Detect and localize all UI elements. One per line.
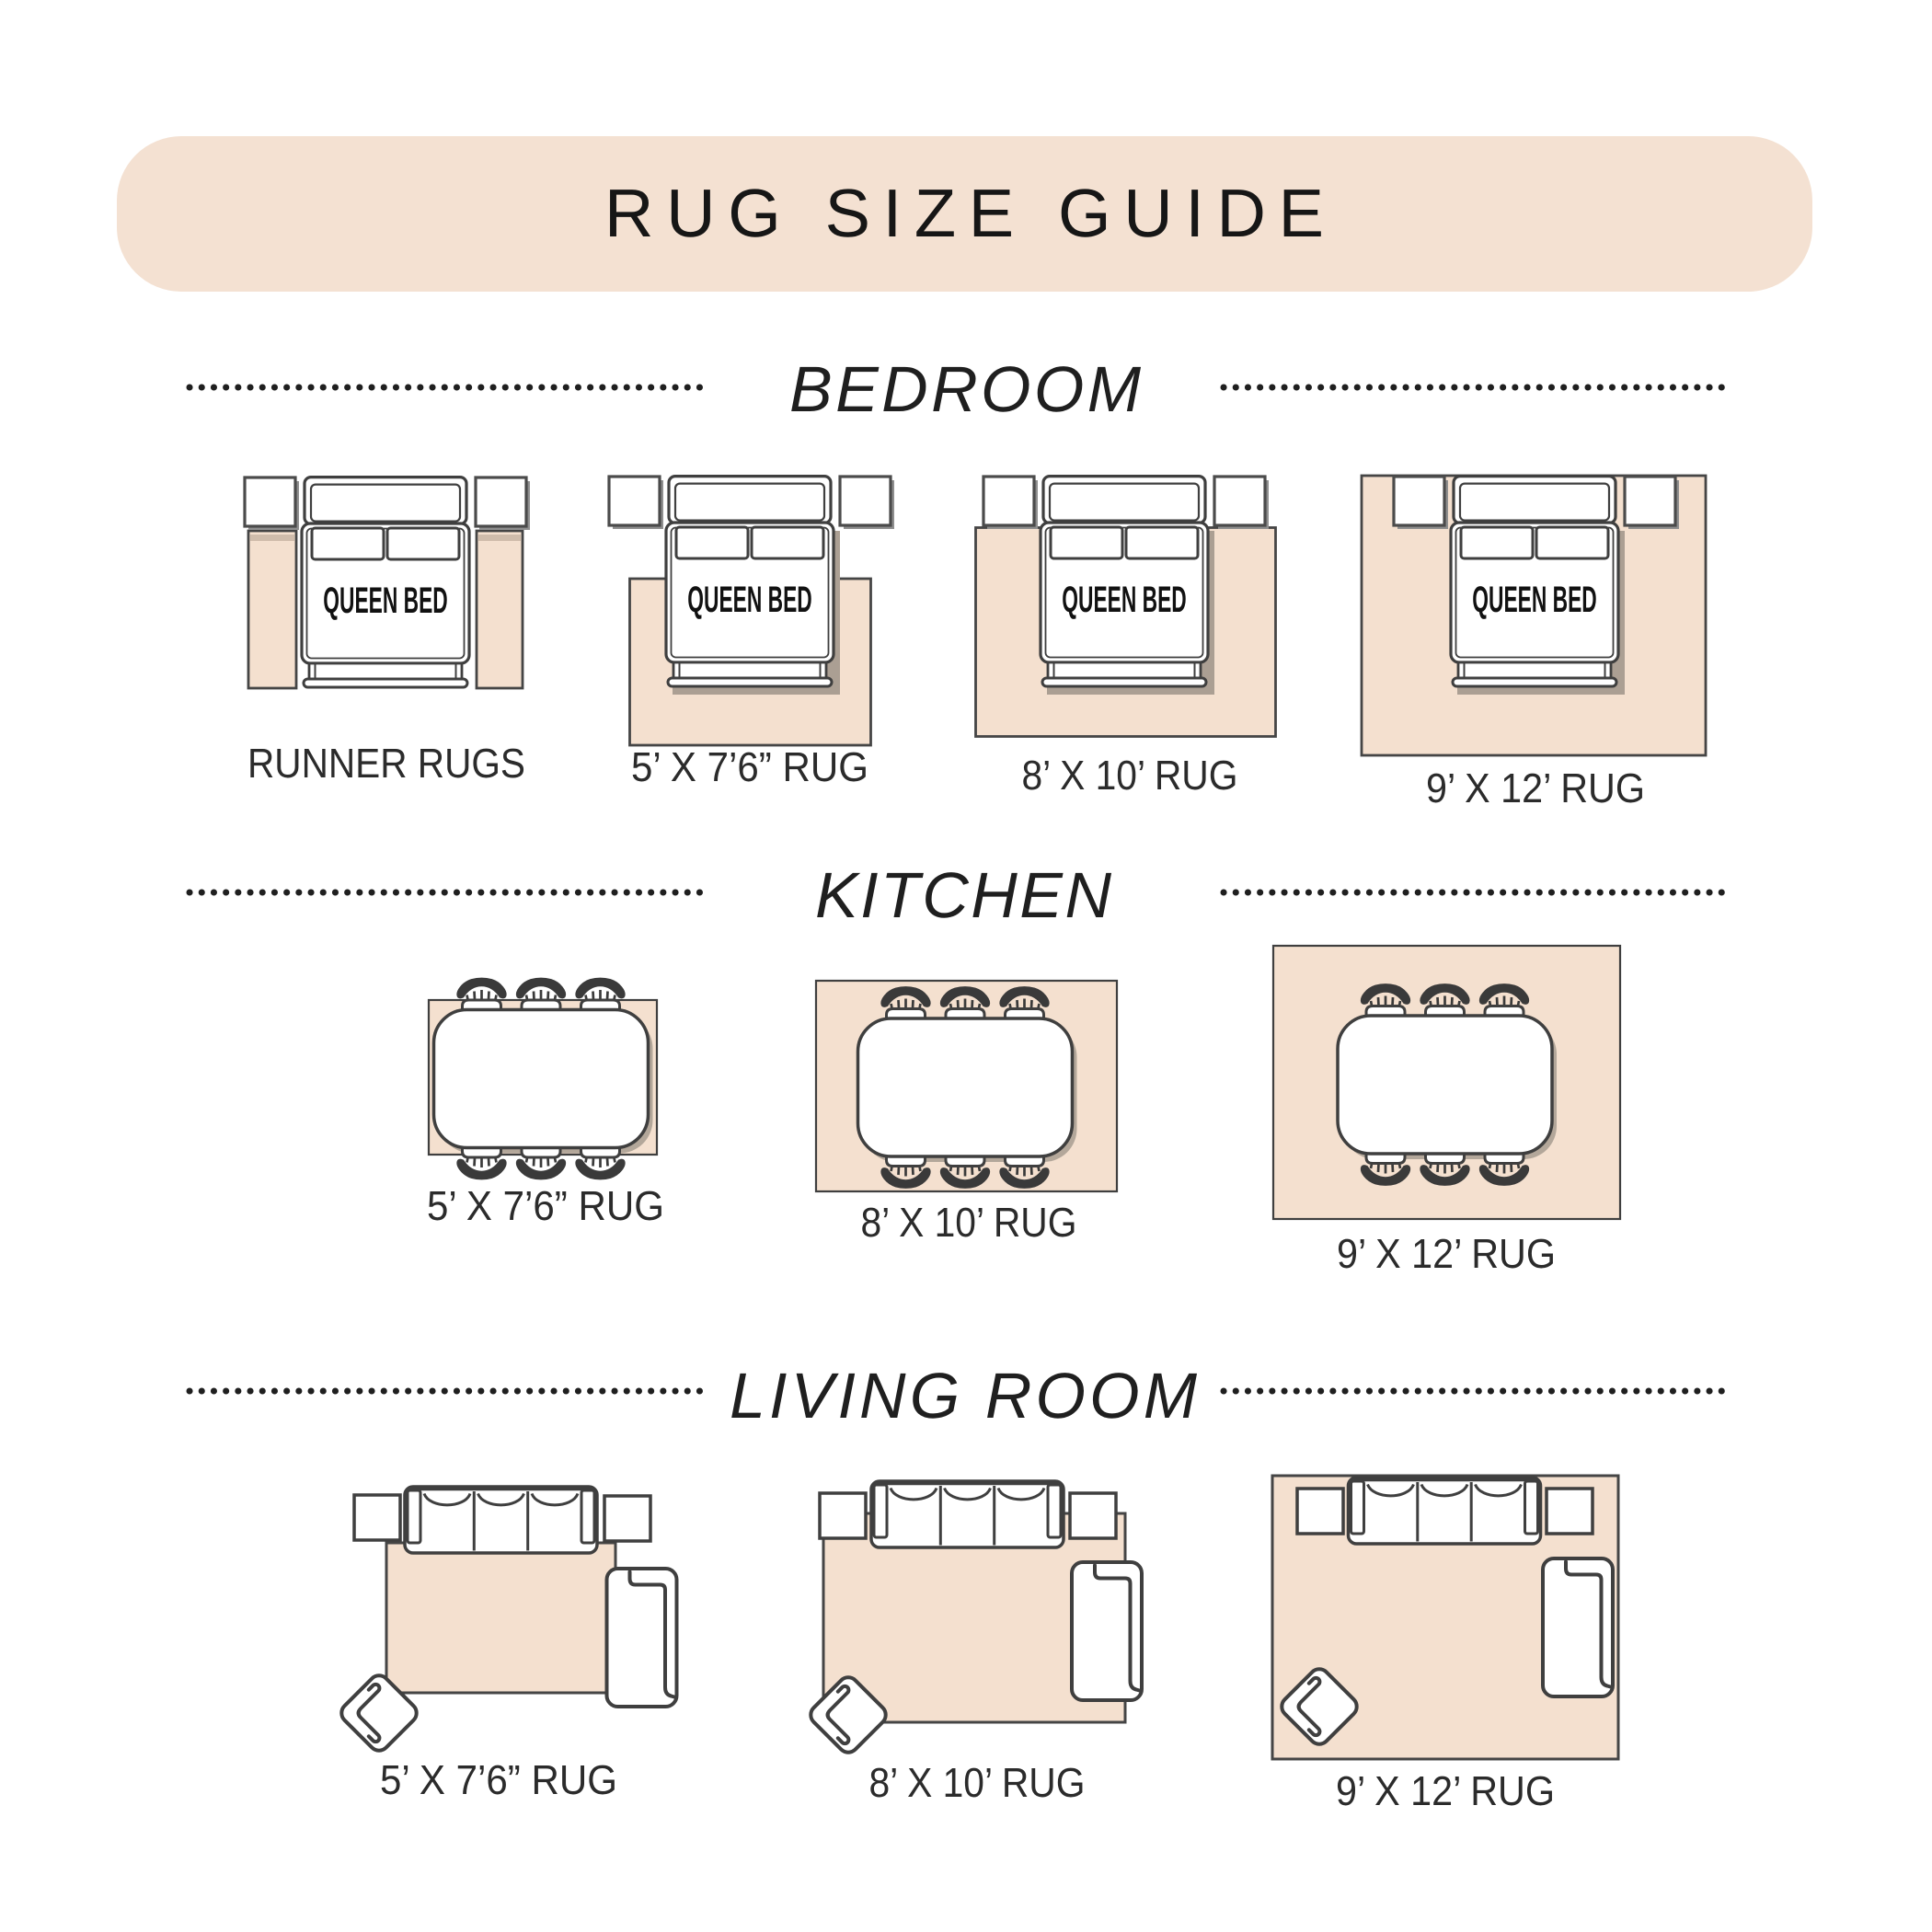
svg-text:RUNNER RUGS: RUNNER RUGS: [247, 740, 525, 787]
svg-text:5’ X 7’6” RUG: 5’ X 7’6” RUG: [427, 1182, 664, 1229]
svg-text:8’ X 10’ RUG: 8’ X 10’ RUG: [861, 1199, 1077, 1246]
svg-text:9’ X 12’ RUG: 9’ X 12’ RUG: [1336, 1767, 1555, 1814]
svg-text:9’ X 12’ RUG: 9’ X 12’ RUG: [1337, 1230, 1556, 1277]
svg-text:LIVING ROOM: LIVING ROOM: [730, 1360, 1198, 1432]
svg-text:5’ X 7’6” RUG: 5’ X 7’6” RUG: [631, 743, 868, 790]
svg-text:5’ X 7’6” RUG: 5’ X 7’6” RUG: [380, 1756, 617, 1803]
svg-text:8’ X 10’ RUG: 8’ X 10’ RUG: [869, 1759, 1086, 1806]
svg-text:BEDROOM: BEDROOM: [789, 353, 1142, 425]
svg-text:KITCHEN: KITCHEN: [815, 859, 1111, 931]
svg-text:8’ X 10’ RUG: 8’ X 10’ RUG: [1022, 752, 1238, 799]
svg-text:9’ X 12’ RUG: 9’ X 12’ RUG: [1426, 765, 1645, 811]
